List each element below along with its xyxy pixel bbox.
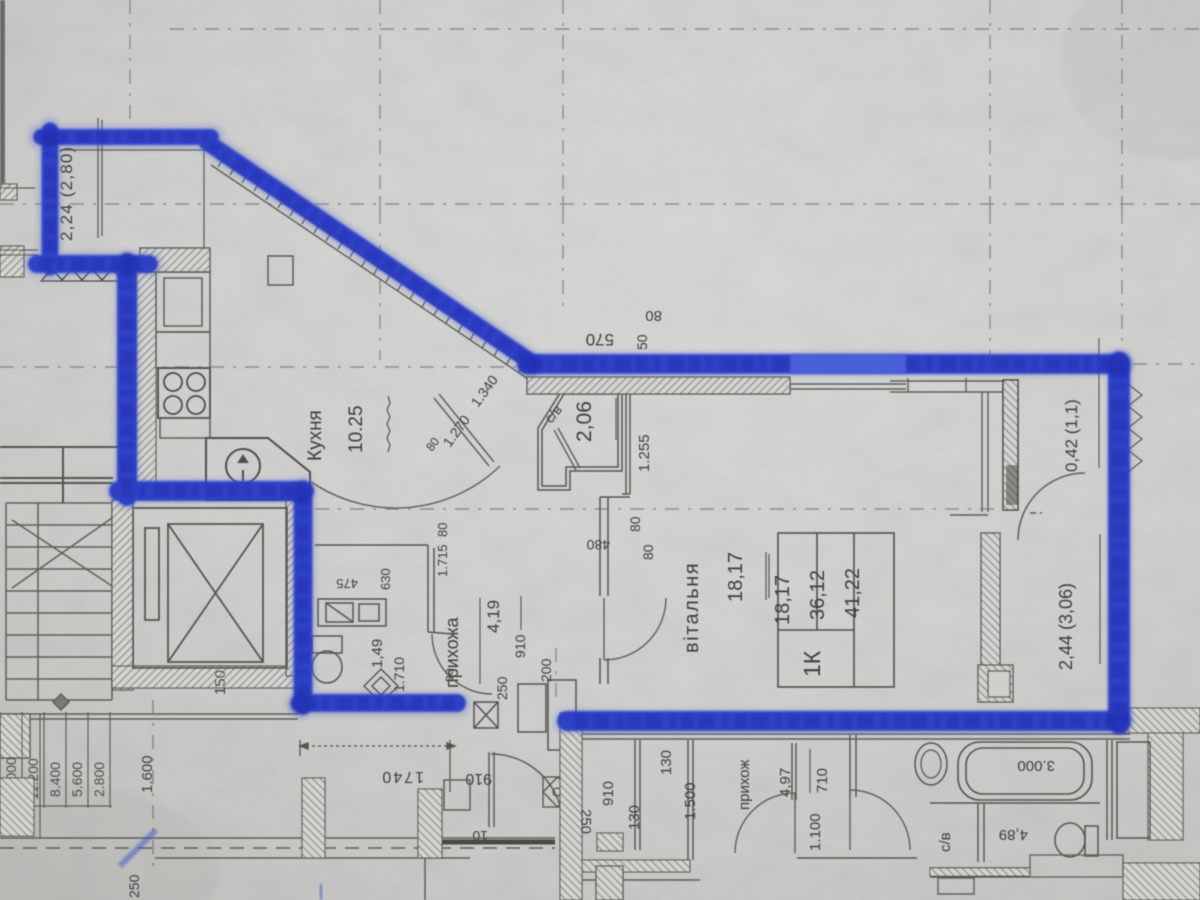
svg-text:вітальня: вітальня (681, 562, 703, 653)
svg-text:с/в: с/в (937, 832, 954, 852)
svg-text:710: 710 (814, 768, 831, 793)
svg-text:80: 80 (435, 523, 450, 537)
svg-text:4,89: 4,89 (999, 826, 1028, 843)
svg-text:18,17: 18,17 (725, 552, 747, 602)
svg-text:910: 910 (465, 770, 492, 787)
svg-text:4,97: 4,97 (777, 768, 794, 797)
svg-text:630: 630 (378, 568, 393, 590)
svg-text:Кухня: Кухня (305, 410, 326, 461)
svg-text:480: 480 (586, 537, 610, 553)
svg-text:0,42 (1,1): 0,42 (1,1) (1062, 399, 1081, 472)
svg-text:475: 475 (336, 576, 358, 591)
svg-text:2,06: 2,06 (573, 401, 596, 442)
svg-text:8.400: 8.400 (47, 762, 63, 797)
svg-text:250: 250 (126, 874, 142, 898)
svg-text:1.715: 1.715 (435, 544, 450, 577)
svg-text:250: 250 (577, 809, 594, 834)
svg-text:1.500: 1.500 (682, 782, 699, 820)
svg-text:1.100: 1.100 (807, 813, 824, 851)
svg-text:4,19: 4,19 (484, 600, 503, 633)
svg-text:50: 50 (634, 334, 650, 350)
svg-text:1.710: 1.710 (391, 657, 407, 692)
svg-text:2.800: 2.800 (91, 762, 107, 797)
svg-text:1740: 1740 (380, 768, 424, 785)
svg-text:36,12: 36,12 (807, 570, 829, 620)
svg-text:130: 130 (626, 805, 643, 830)
svg-text:80: 80 (645, 307, 662, 324)
svg-text:1,49: 1,49 (369, 639, 386, 668)
svg-text:570: 570 (586, 330, 614, 349)
svg-text:910: 910 (600, 781, 617, 806)
svg-text:18,17: 18,17 (772, 575, 794, 625)
svg-text:прихож: прихож (736, 760, 753, 810)
svg-text:41,22: 41,22 (842, 568, 864, 618)
svg-text:2,44 (3,06): 2,44 (3,06) (1056, 583, 1076, 670)
svg-text:1.255: 1.255 (636, 434, 653, 472)
svg-text:80: 80 (627, 516, 643, 532)
svg-text:150: 150 (212, 670, 229, 695)
svg-text:250: 250 (494, 676, 510, 700)
svg-text:3.000: 3.000 (1017, 757, 1055, 774)
svg-text:910: 910 (512, 634, 528, 658)
svg-text:80: 80 (640, 544, 656, 560)
svg-text:130: 130 (658, 750, 675, 775)
svg-text:5.600: 5.600 (69, 762, 85, 797)
svg-text:200: 200 (538, 658, 554, 682)
svg-text:1К: 1К (799, 650, 825, 677)
svg-text:10.25: 10.25 (346, 405, 367, 453)
